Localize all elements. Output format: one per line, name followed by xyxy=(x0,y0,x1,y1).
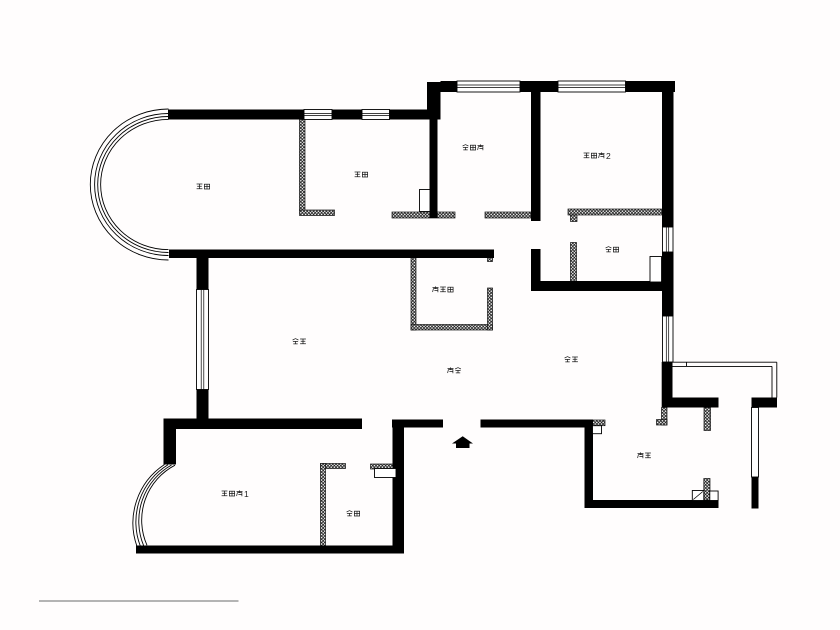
svg-text:1: 1 xyxy=(244,489,249,499)
svg-text:2: 2 xyxy=(606,151,611,161)
